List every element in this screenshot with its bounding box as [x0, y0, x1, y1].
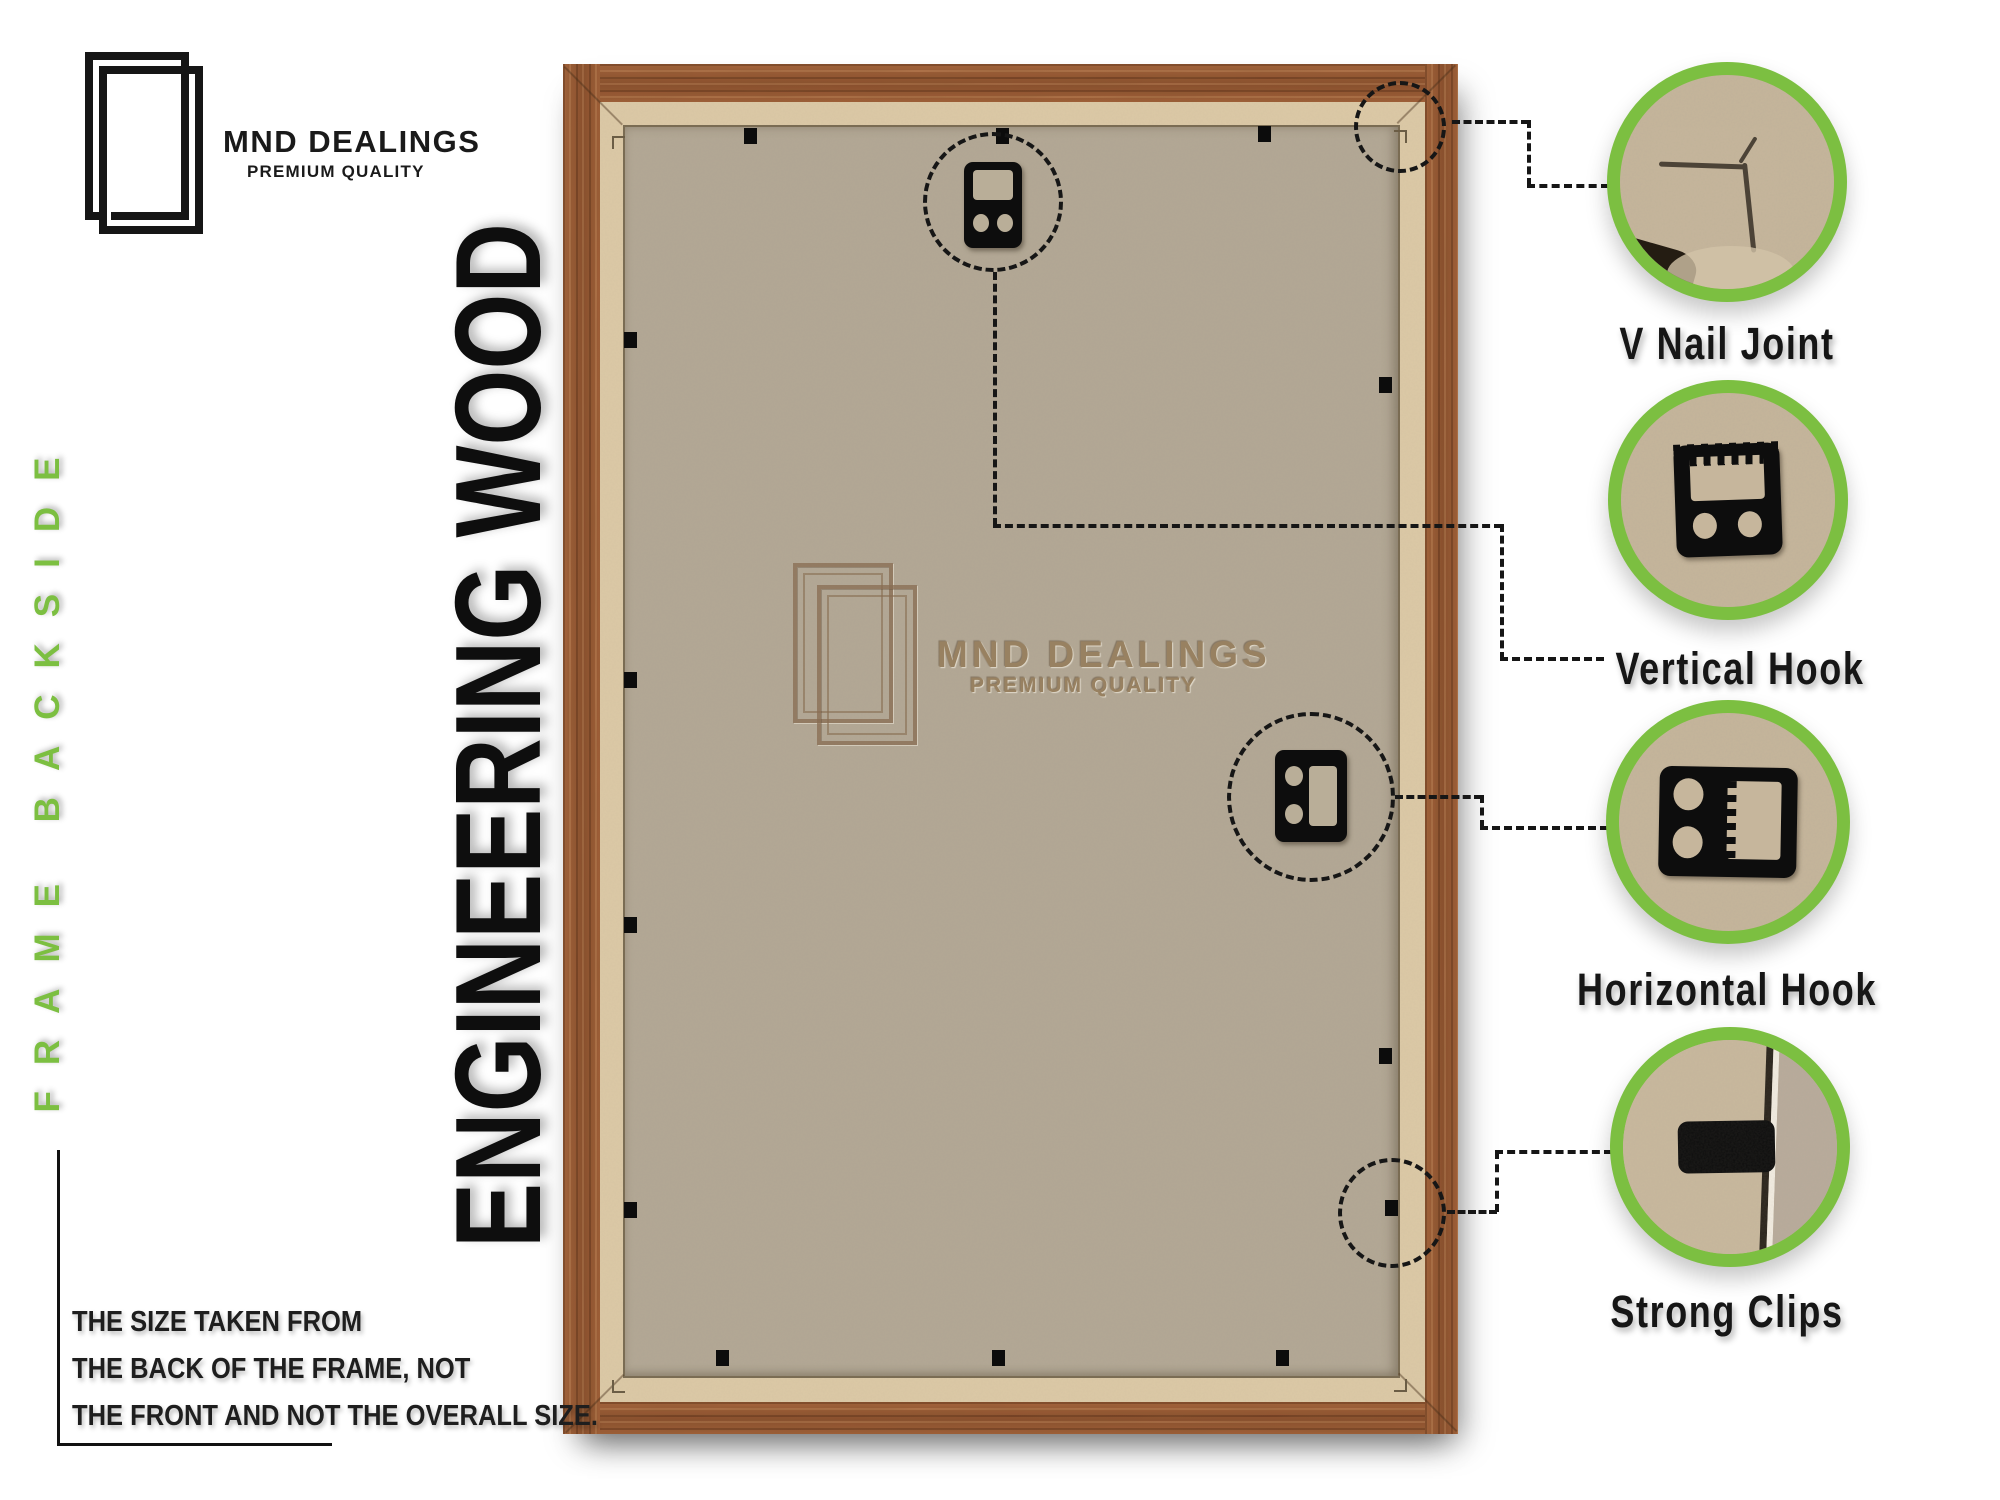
watermark: MND DEALINGS PREMIUM QUALITY	[780, 552, 1250, 772]
connector-line	[1480, 795, 1484, 828]
watermark-frame-icon	[817, 585, 917, 745]
paper-edge	[1667, 246, 1795, 302]
connector-line	[1500, 524, 1504, 660]
clip-marker	[716, 1350, 729, 1366]
clip-marker	[624, 917, 637, 933]
connector-line	[1527, 120, 1531, 186]
clip-marker	[624, 672, 637, 688]
callout-photo-v-nail-joint	[1607, 62, 1847, 302]
clip-marker	[1379, 1048, 1392, 1064]
connector-line	[1452, 120, 1529, 124]
connector-line	[1447, 1210, 1497, 1214]
callout-photo-vertical-hook	[1608, 380, 1848, 620]
strong-clip-photo-content	[1610, 1027, 1850, 1267]
horizontal-hook-icon	[1658, 766, 1798, 878]
connector-line	[1480, 826, 1608, 830]
note-bracket-horizontal	[57, 1443, 332, 1446]
frame-wood-left	[563, 64, 600, 1434]
annotation-circle-vertical-hook	[923, 132, 1063, 272]
note-line-3: THE FRONT AND NOT THE OVERALL SIZE.	[72, 1400, 598, 1433]
brand-name: MND DEALINGS	[223, 124, 480, 160]
note-line-1: THE SIZE TAKEN FROM	[72, 1306, 362, 1339]
callout-photo-strong-clips	[1610, 1027, 1850, 1267]
watermark-name: MND DEALINGS	[937, 634, 1271, 676]
watermark-tagline: PREMIUM QUALITY	[970, 674, 1197, 698]
connector-line	[1527, 184, 1609, 188]
clip-marker	[744, 128, 757, 144]
note-bracket-vertical	[57, 1150, 60, 1445]
frame-backside-vertical-label: FRAME BACKSIDE	[28, 377, 68, 1167]
v-groove-line	[1658, 161, 1744, 169]
v-groove-crack	[1739, 136, 1758, 164]
callout-photo-horizontal-hook	[1606, 700, 1850, 944]
annotation-circle-corner-joint	[1354, 81, 1446, 173]
clip-marker	[992, 1350, 1005, 1366]
annotation-circle-horizontal-hook	[1227, 712, 1395, 882]
strong-clip-icon	[1678, 1120, 1775, 1173]
clip-marker	[1258, 126, 1271, 142]
connector-line	[1495, 1150, 1612, 1154]
callout-label-vertical-hook: Vertical Hook	[1584, 643, 1895, 695]
corner-mark	[612, 136, 614, 149]
connector-line	[993, 272, 997, 526]
vertical-hook-icon	[1673, 442, 1783, 558]
connector-line	[993, 524, 1502, 528]
clip-marker	[1276, 1350, 1289, 1366]
corner-mark	[612, 1380, 614, 1393]
clip-marker	[624, 332, 637, 348]
annotation-circle-strong-clip	[1338, 1158, 1446, 1268]
connector-line	[1395, 795, 1482, 799]
corner-mark	[1405, 1379, 1407, 1392]
frame-wood-bottom	[563, 1402, 1458, 1434]
engineering-wood-vertical-label: ENGINEERING WOOD	[428, 248, 568, 1248]
callout-label-horizontal-hook: Horizontal Hook	[1540, 964, 1915, 1016]
frame-wood-top	[563, 64, 1458, 102]
note-line-2: THE BACK OF THE FRAME, NOT	[72, 1353, 470, 1386]
connector-line	[1495, 1151, 1499, 1212]
v-groove-line	[1742, 162, 1756, 252]
callout-label-strong-clips: Strong Clips	[1581, 1286, 1873, 1338]
brand-tagline: PREMIUM QUALITY	[247, 162, 425, 182]
clip-marker	[1379, 377, 1392, 393]
clip-marker	[624, 1202, 637, 1218]
callout-label-v-nail-joint: V Nail Joint	[1592, 318, 1861, 370]
